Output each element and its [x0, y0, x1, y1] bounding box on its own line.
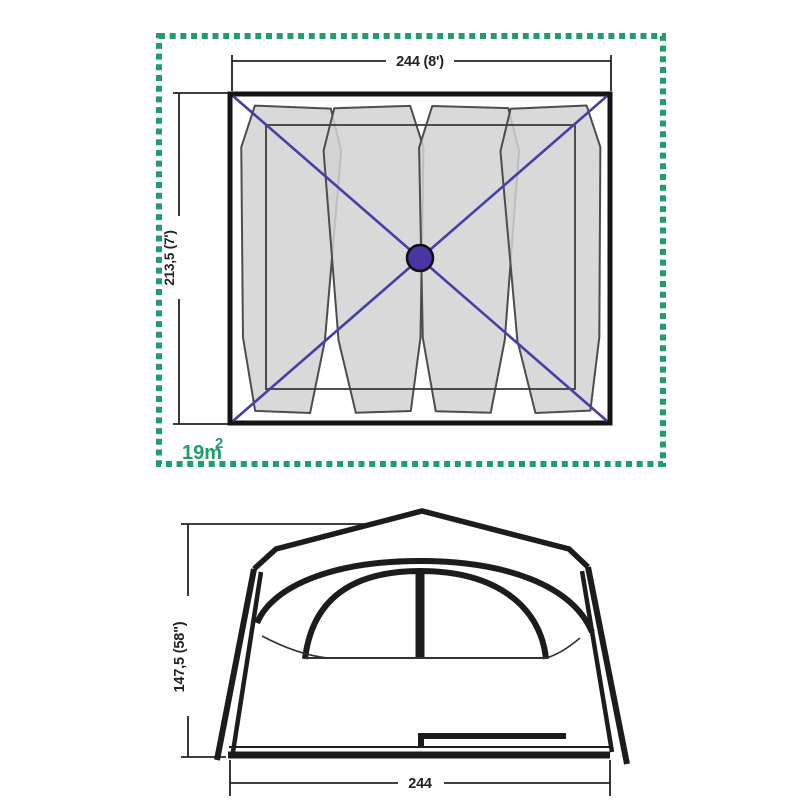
area-superscript: 2: [215, 435, 223, 452]
elevation-view: 147,5 (58") 244: [172, 511, 627, 796]
center-hub: [407, 245, 433, 271]
floor-plan-view: 244 (8') 213,5 (7') 19m 2: [159, 36, 663, 464]
tent-spec-diagram: 244 (8') 213,5 (7') 19m 2: [0, 0, 800, 800]
tent-body: [217, 511, 627, 764]
window-sill-curve-left: [262, 636, 328, 658]
elevation-height-label: 147,5 (58"): [172, 621, 188, 692]
door-threshold: [421, 736, 566, 746]
floor-width-label: 244 (8'): [396, 54, 444, 70]
elevation-width-label: 244: [408, 776, 432, 792]
floor-depth-label: 213,5 (7'): [162, 230, 177, 285]
door-arch: [305, 571, 546, 659]
window-sill-curve-right: [546, 638, 580, 658]
floor-depth-dimension: [173, 93, 228, 424]
elevation-height-dimension: [181, 524, 368, 757]
diagram-canvas: 244 (8') 213,5 (7') 19m 2: [0, 0, 800, 800]
